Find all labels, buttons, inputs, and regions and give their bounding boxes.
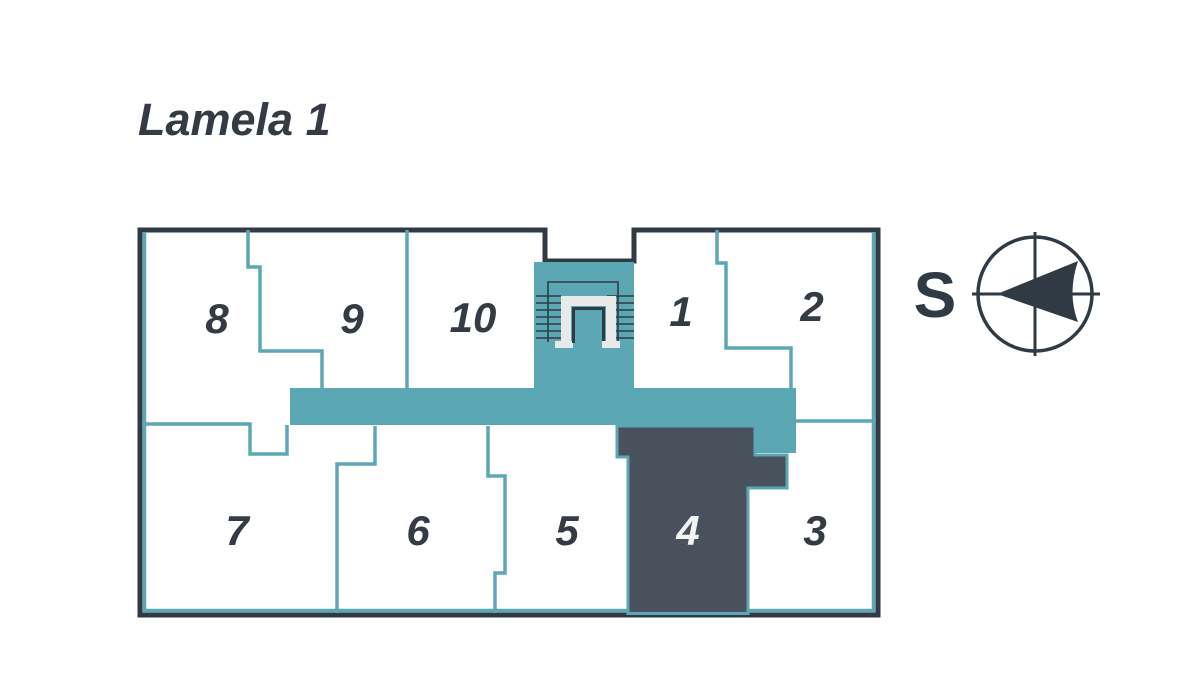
unit-8-region[interactable] [142,232,246,422]
compass-needle-icon [997,261,1078,322]
floor-plan: 8 9 10 1 2 7 6 5 4 3 S [0,0,1201,700]
compass-direction-label: S [914,259,957,331]
unit-7-region[interactable] [142,427,335,612]
unit-1-region[interactable] [634,232,717,388]
unit-9-region[interactable] [262,232,405,386]
unit-10-region[interactable] [409,232,532,386]
unit-3-region[interactable] [789,421,875,612]
compass-icon: S [914,232,1100,356]
unit-2-region[interactable] [726,232,875,420]
unit-5-region[interactable] [505,427,615,612]
unit-6-region[interactable] [339,427,486,612]
